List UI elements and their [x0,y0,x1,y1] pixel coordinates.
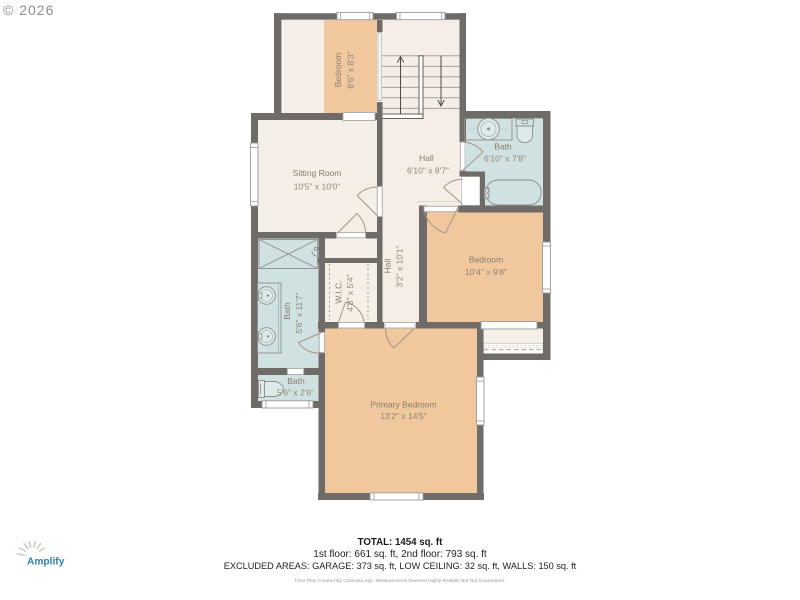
svg-text:Primary Bedroom: Primary Bedroom [370,400,436,410]
svg-text:Sitting Room: Sitting Room [293,168,342,178]
svg-text:Bath: Bath [282,302,292,320]
svg-text:6'10" x 8'7": 6'10" x 8'7" [407,166,449,176]
svg-text:Bath: Bath [287,376,305,386]
svg-text:Bedroom: Bedroom [333,53,343,88]
svg-text:6'10" x 7'8": 6'10" x 7'8" [484,154,526,164]
svg-text:Hall: Hall [383,259,393,274]
svg-text:4'8" x 5'4": 4'8" x 5'4" [345,274,355,311]
svg-text:Bedroom: Bedroom [469,255,504,265]
svg-text:10'5" x 10'0": 10'5" x 10'0" [294,182,341,192]
svg-text:Bath: Bath [494,142,512,152]
svg-text:5'6" x 2'6": 5'6" x 2'6" [277,388,314,398]
svg-text:Hall: Hall [419,153,434,163]
svg-text:5'6" x 11'7": 5'6" x 11'7" [294,292,304,333]
svg-text:8'6" x 8'3": 8'6" x 8'3" [346,51,356,88]
svg-text:W.I.C.: W.I.C. [334,280,344,303]
svg-text:3'2" x 10'1": 3'2" x 10'1" [395,246,405,288]
svg-text:10'4" x 9'8": 10'4" x 9'8" [465,267,507,277]
svg-text:13'2" x 14'5": 13'2" x 14'5" [380,411,427,421]
